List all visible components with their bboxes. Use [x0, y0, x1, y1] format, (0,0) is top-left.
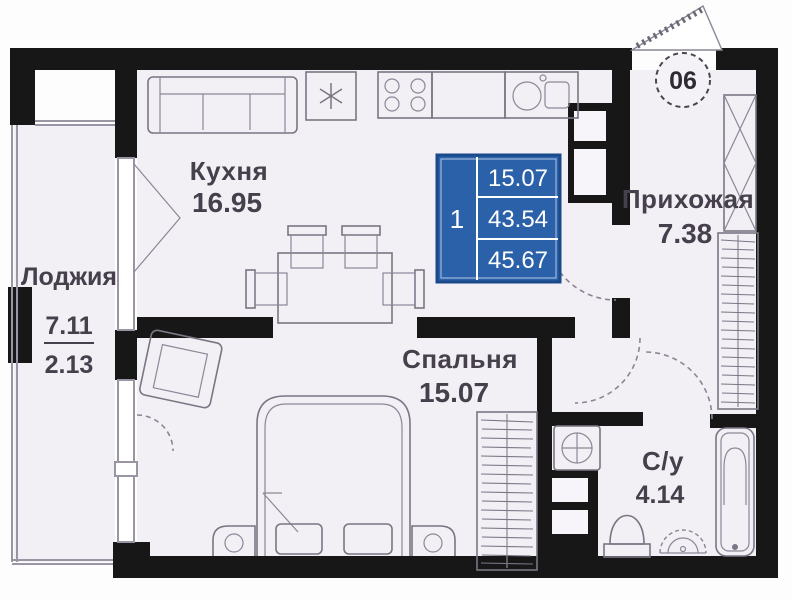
wall-bedroom-right: [537, 338, 552, 578]
bedroom-label: Спальня: [402, 344, 518, 374]
bathroom-area: 4.14: [636, 481, 685, 509]
bedroom-area: 15.07: [419, 377, 489, 408]
wall-top: [10, 48, 632, 70]
kitchen-window: [118, 158, 134, 330]
wall-loggia-kitchen-top: [115, 48, 137, 158]
wall-left-top: [10, 48, 35, 125]
info-box-rooms-count: 1: [450, 204, 464, 234]
floor-plan-svg: 06: [0, 0, 792, 600]
shaft-kitchen-cell-2: [574, 149, 606, 195]
wall-corridor-stub-a: [540, 317, 575, 338]
apartment-number: 06: [669, 67, 697, 95]
loggia-area-coef: 2.13: [45, 351, 94, 379]
loggia-area-full: 7.11: [45, 312, 92, 340]
shaft-bathroom-cell-2: [552, 510, 588, 534]
bathroom-label: С/у: [642, 446, 684, 476]
hallway-area: 7.38: [658, 218, 713, 249]
info-box-total-area: 45.67: [488, 247, 548, 274]
hallway-label: Прихожая: [622, 184, 754, 214]
wall-kitchen-bedroom-a: [137, 317, 273, 338]
bathtub-drain: [732, 544, 738, 550]
drum-cross-icon: [562, 433, 592, 463]
shaft-bathroom-cell-1: [552, 478, 588, 502]
floor-plan-canvas: 06: [0, 0, 792, 600]
kitchen-area: 16.95: [192, 187, 262, 218]
wall-loggia-bottom-corner: [113, 542, 150, 578]
wall-bathroom-top-b: [710, 414, 756, 428]
kitchen-label: Кухня: [190, 156, 268, 186]
info-box: 1 15.07 43.54 45.67: [437, 155, 560, 282]
bedroom-window-transom: [115, 462, 137, 476]
info-box-living-area: 15.07: [488, 165, 548, 192]
loggia-label: Лоджия: [21, 263, 117, 291]
wall-bathroom-top-a: [552, 412, 643, 426]
wall-right: [756, 48, 778, 578]
wall-kitchen-bedroom-b: [417, 317, 540, 338]
wall-bottom: [113, 556, 778, 578]
wall-loggia-mid: [115, 330, 137, 380]
info-box-area: 43.54: [488, 206, 548, 233]
wall-corridor-stub-b: [612, 298, 630, 338]
